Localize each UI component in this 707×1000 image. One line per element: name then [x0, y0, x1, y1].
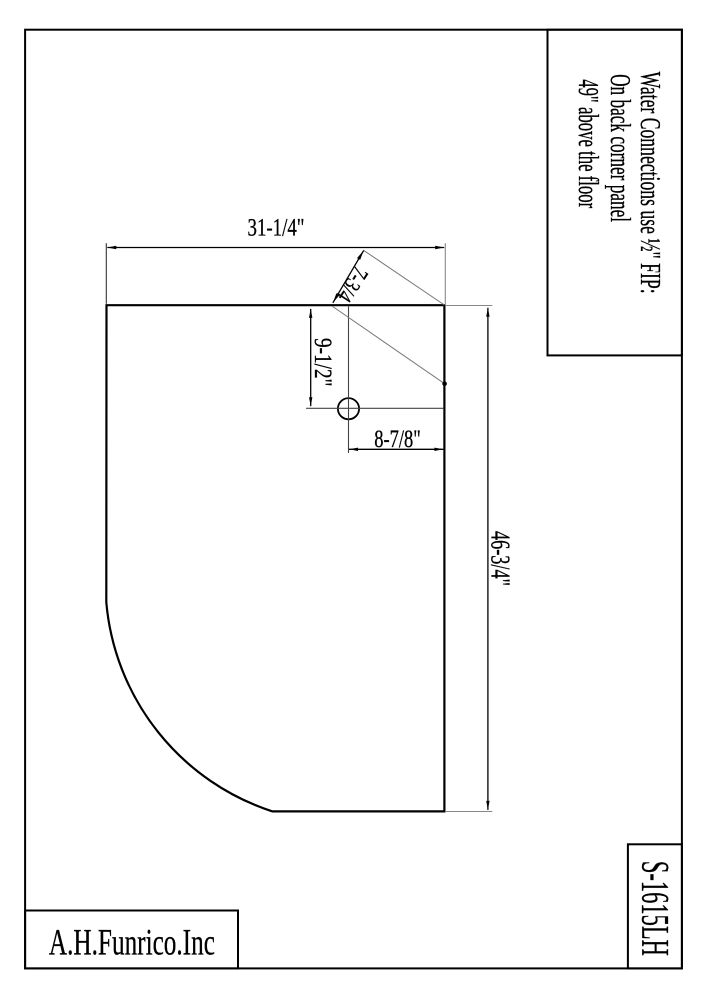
svg-text:31-1/4": 31-1/4": [248, 215, 305, 242]
svg-text:46-3/4": 46-3/4": [486, 531, 516, 586]
svg-text:8-7/8": 8-7/8": [374, 426, 421, 453]
svg-text:A.H.Funrico.Inc: A.H.Funrico.Inc: [49, 922, 215, 963]
svg-text:S-1615LH: S-1615LH: [634, 861, 677, 956]
svg-text:On back corner panel: On back corner panel: [604, 74, 635, 222]
svg-text:49" above the floor: 49" above the floor: [572, 79, 603, 208]
svg-text:9-1/2": 9-1/2": [309, 338, 336, 387]
svg-text:Water Connections use ½" FIP:: Water Connections use ½" FIP:: [634, 72, 665, 294]
